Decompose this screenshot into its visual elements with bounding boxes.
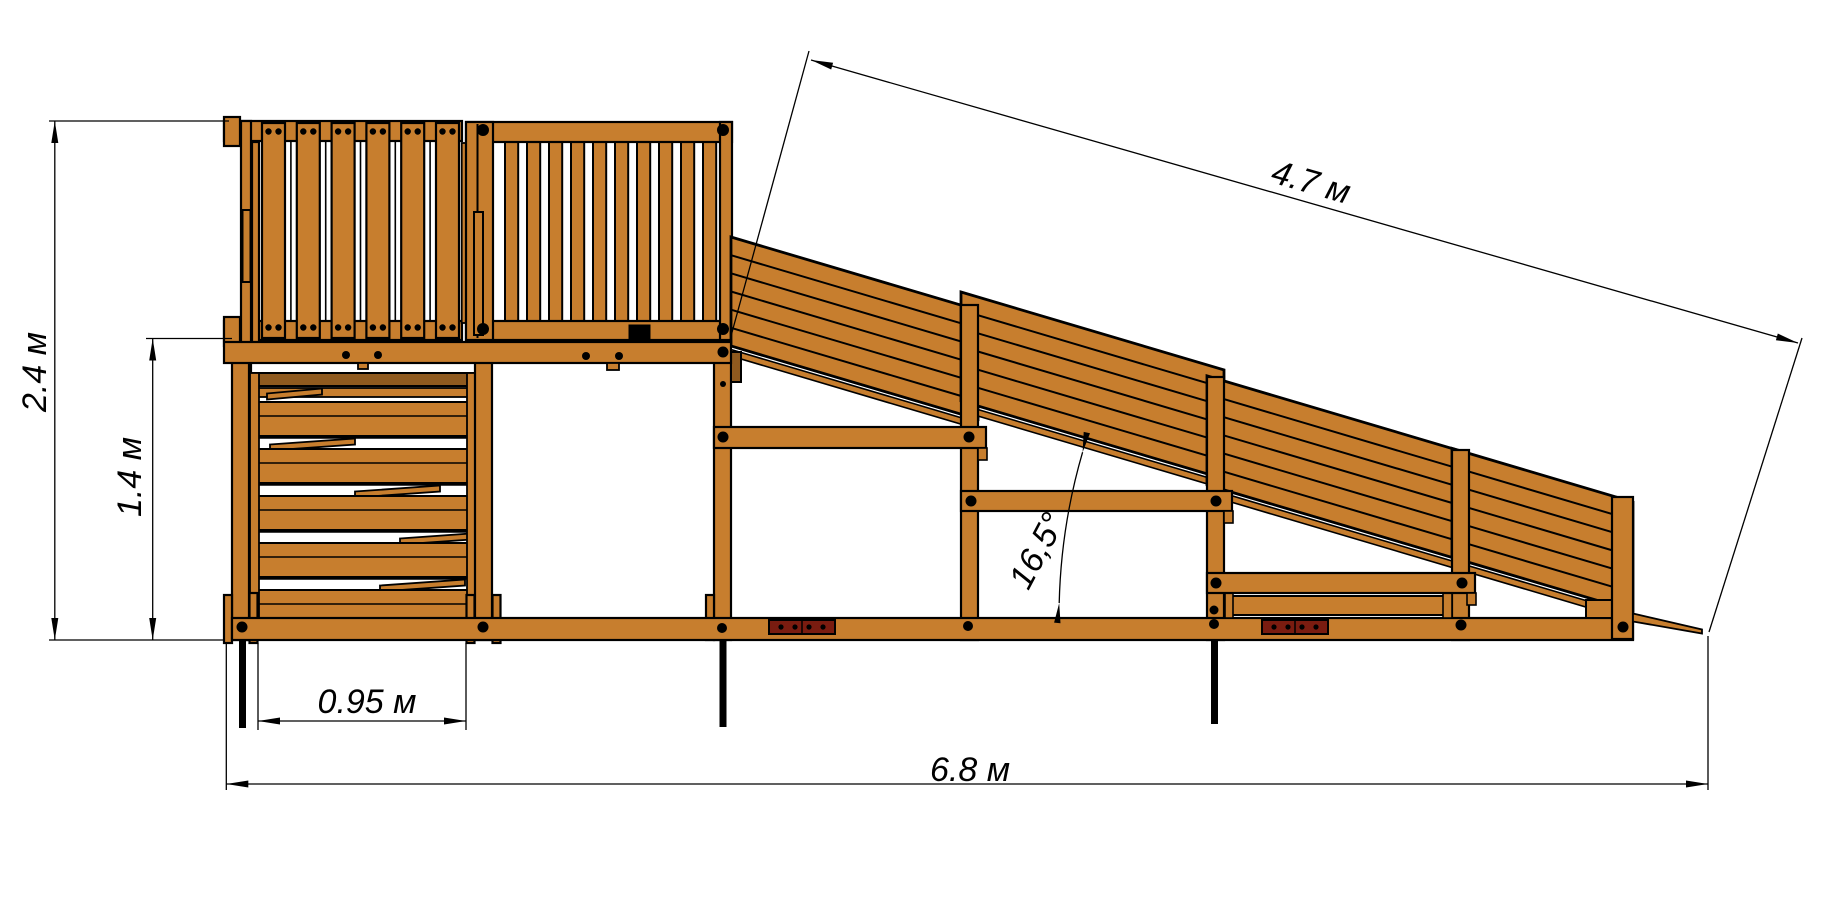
svg-text:0.95 м: 0.95 м xyxy=(318,683,417,721)
svg-text:6.8 м: 6.8 м xyxy=(930,751,1010,789)
svg-text:1.4 м: 1.4 м xyxy=(111,437,149,517)
svg-text:2.4 м: 2.4 м xyxy=(16,332,54,413)
